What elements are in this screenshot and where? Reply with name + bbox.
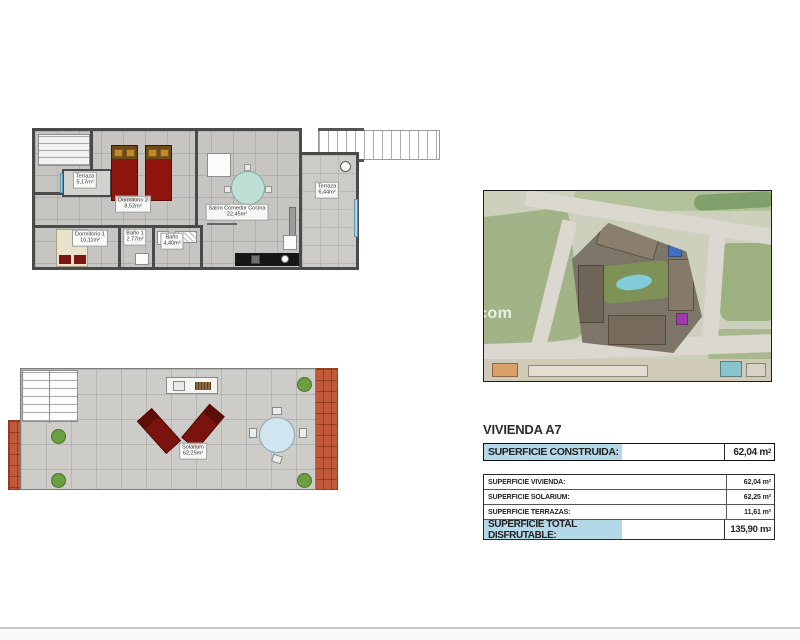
table-row-vivienda: SUPERFICIE VIVIENDA: 62,04 m² [484, 475, 774, 490]
room-label-salon: Salón Comedor Cocina 22,45m² [206, 204, 269, 221]
fridge [283, 235, 297, 250]
surface-breakdown-table: SUPERFICIE VIVIENDA: 62,04 m² SUPERFICIE… [483, 474, 775, 540]
terrace-right-room [299, 152, 359, 270]
light-fixture [340, 161, 351, 172]
round-table [259, 417, 295, 453]
total-value: 135,90 m2 [725, 520, 774, 539]
building-block [578, 265, 604, 323]
row-label: SUPERFICIE TERRAZAS: [484, 505, 727, 519]
magenta-roof-detail [676, 313, 688, 325]
building-block [608, 315, 666, 345]
patio-chair [249, 428, 257, 438]
value-number: 62,04 [733, 447, 757, 458]
pillow [160, 149, 169, 157]
house-pool [720, 361, 742, 377]
solarium-staircase [22, 370, 78, 422]
room-area: 2,77m² [126, 237, 143, 243]
stove [251, 255, 260, 264]
apartment-floorplan: Terraza 5,17m² Dormitorio 2 8,52m² Dormi… [30, 124, 442, 272]
plant [297, 377, 312, 392]
window-glazing [60, 173, 63, 193]
room-area: 8,52m² [118, 204, 148, 210]
unit-title: VIVIENDA A7 [483, 422, 561, 437]
bbq-grill [195, 382, 211, 390]
roof-tiles-right [314, 368, 338, 490]
cell-spacer [622, 520, 725, 539]
room-area: 10,11m² [75, 238, 105, 244]
page: Terraza 5,17m² Dormitorio 2 8,52m² Dormi… [0, 0, 800, 640]
stair-landing-wall [318, 128, 364, 131]
kitchen-sink [281, 255, 289, 263]
dining-chair [224, 186, 231, 193]
room-label-bano1: Baño 1 2,77m² [123, 229, 146, 246]
interior-wall [200, 228, 203, 267]
room-label-dormitorio2: Dormitorio 2 8,52m² [115, 196, 151, 213]
room-label-dormitorio1: Dormitorio 1 10,11m² [72, 230, 108, 247]
room-area: 6,44m² [318, 190, 336, 196]
value-unit: m [760, 524, 768, 535]
sofa [289, 207, 296, 237]
patio-chair [271, 454, 283, 465]
room-label-solarium: Solarium 62,25m² [179, 443, 207, 460]
interior-wall [118, 228, 121, 267]
field-right-upper [720, 243, 772, 321]
interior-wall [152, 228, 155, 267]
house [492, 363, 518, 377]
room-area: 4,40m² [163, 241, 180, 247]
dining-table [231, 171, 265, 205]
dining-chair [265, 186, 272, 193]
plant [297, 473, 312, 488]
single-bed [145, 145, 172, 201]
solarium-floorplan: Solarium 62,25m² [8, 362, 340, 494]
residential-complex [572, 223, 702, 353]
house [528, 365, 648, 377]
bbq-sink [173, 381, 185, 391]
pillow [114, 149, 123, 157]
tv-bench [207, 223, 237, 225]
patio-chair [272, 407, 282, 415]
room-area: 5,17m² [76, 180, 94, 186]
bottom-strip [0, 629, 800, 640]
row-label: SUPERFICIE VIVIENDA: [484, 475, 727, 489]
dining-chair [244, 164, 251, 171]
room-label-terraza-left: Terraza 5,17m² [73, 172, 97, 189]
total-label: SUPERFICIE TOTAL DISFRUTABLE: [484, 520, 622, 539]
pillow [148, 149, 157, 157]
built-surface-value: 62,04 m2 [725, 444, 774, 460]
red-roof-detail [594, 221, 604, 229]
row-value: 11,61 m² [727, 505, 774, 519]
coffee-table [207, 153, 231, 177]
built-surface-label: SUPERFICIE CONSTRUIDA: [484, 444, 622, 460]
table-row-solarium: SUPERFICIE SOLARIUM: 62,25 m² [484, 490, 774, 505]
single-bed [111, 145, 138, 201]
plant [51, 473, 66, 488]
sink [135, 253, 149, 265]
room-area: 22,45m² [209, 212, 266, 218]
room-label-bano: Baño 4,40m² [160, 233, 183, 250]
row-value: 62,04 m² [727, 475, 774, 489]
room-area: 62,25m² [182, 451, 204, 457]
built-surface-row: SUPERFICIE CONSTRUIDA: 62,04 m2 [483, 443, 775, 461]
interior-staircase [38, 134, 90, 166]
value-unit: m [759, 447, 768, 458]
plant [51, 429, 66, 444]
stair-divider [49, 371, 50, 423]
pillow [74, 255, 86, 264]
table-row-total: SUPERFICIE TOTAL DISFRUTABLE: 135,90 m2 [484, 520, 774, 539]
house [746, 363, 766, 377]
pillow [59, 255, 71, 264]
pillow [126, 149, 135, 157]
sun-lounger [137, 408, 181, 454]
cell-spacer [622, 444, 725, 460]
row-label: SUPERFICIE SOLARIUM: [484, 490, 727, 504]
value-number: 135,90 [730, 524, 757, 535]
row-value: 62,25 m² [727, 490, 774, 504]
building-block [668, 259, 694, 311]
room-label-terraza-right: Terraza 6,44m² [315, 182, 339, 199]
patio-chair [299, 428, 307, 438]
interior-wall [195, 131, 198, 228]
bbq-counter [166, 377, 218, 394]
kitchen-counter [235, 253, 299, 266]
satellite-location-image: com [483, 190, 772, 382]
blue-roof-detail [668, 245, 682, 257]
window-glazing [354, 199, 358, 237]
watermark-text: com [483, 305, 512, 323]
